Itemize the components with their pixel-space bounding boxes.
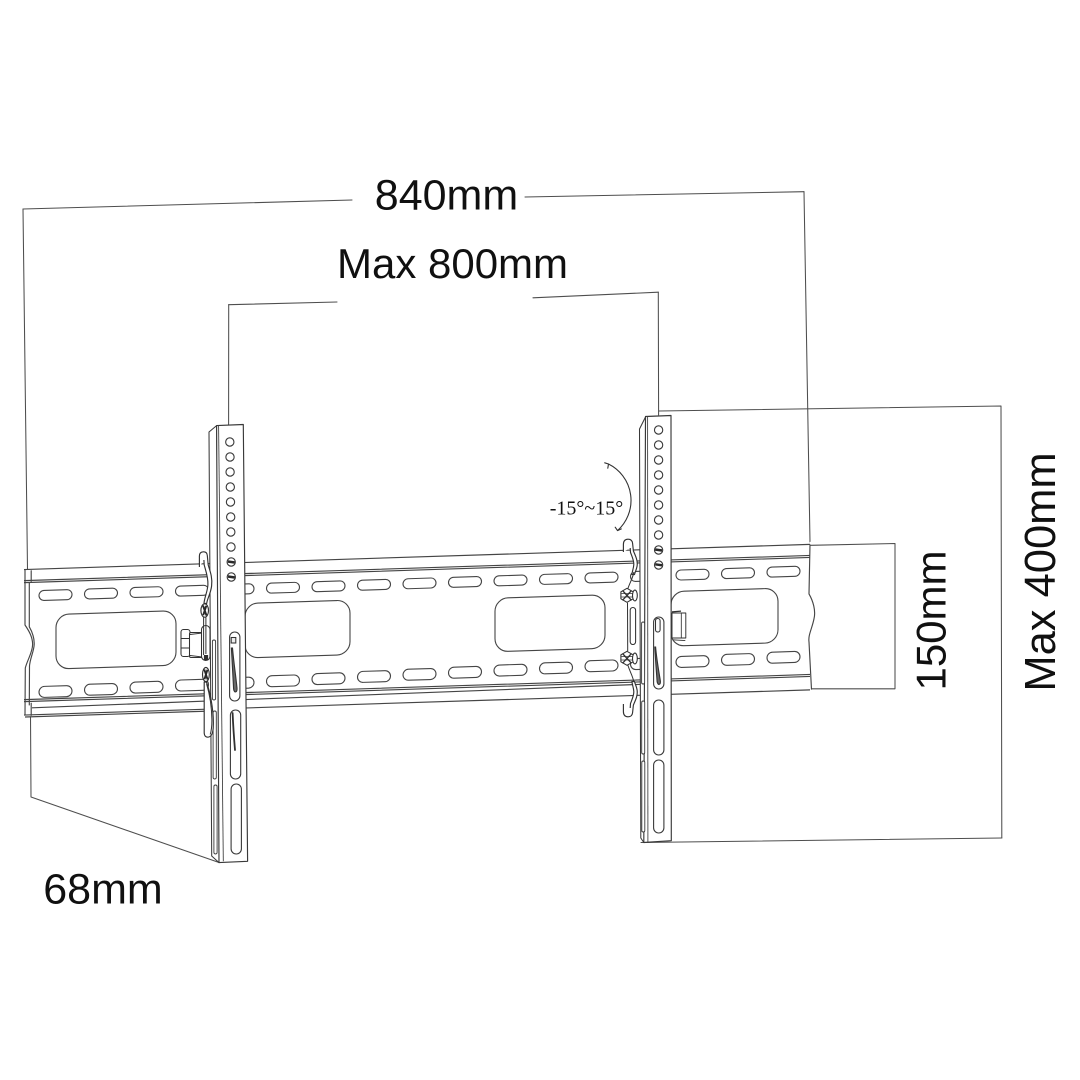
svg-text:Max 800mm: Max 800mm (337, 240, 568, 287)
svg-text:Max 400mm: Max 400mm (1017, 452, 1065, 691)
svg-text:68mm: 68mm (43, 866, 162, 914)
svg-text:-15°~15°: -15°~15° (550, 498, 623, 520)
svg-text:840mm: 840mm (375, 172, 518, 220)
svg-text:150mm: 150mm (908, 550, 955, 690)
